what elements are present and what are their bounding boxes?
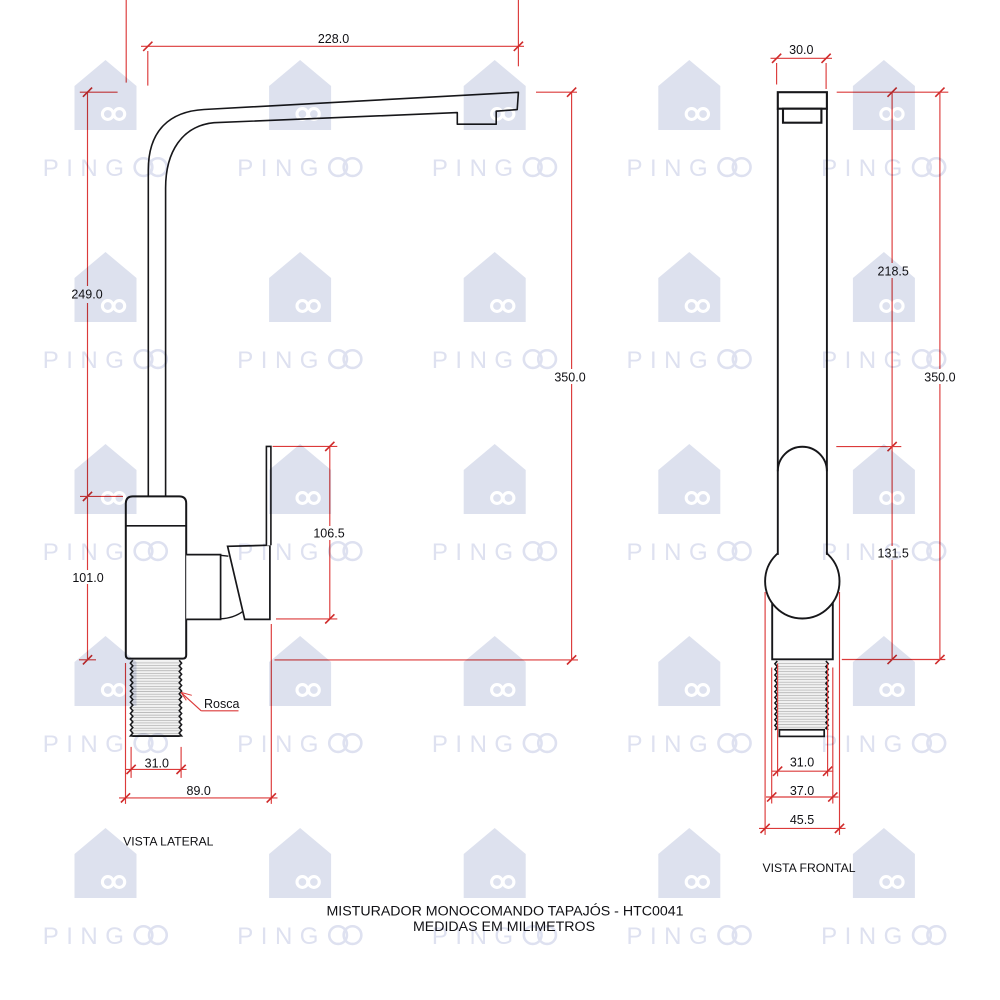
svg-text:350.0: 350.0: [924, 371, 955, 385]
svg-text:PING: PING: [627, 347, 716, 374]
svg-text:31.0: 31.0: [790, 756, 814, 770]
svg-text:350.0: 350.0: [554, 371, 585, 385]
svg-text:MISTURADOR MONOCOMANDO TAPAJÓS: MISTURADOR MONOCOMANDO TAPAJÓS - HTC0041: [326, 903, 683, 920]
svg-text:PING: PING: [432, 539, 521, 566]
svg-text:218.5: 218.5: [878, 265, 909, 279]
svg-text:45.5: 45.5: [790, 813, 814, 827]
svg-text:VISTA FRONTAL: VISTA FRONTAL: [763, 861, 856, 875]
svg-text:MEDIDAS EM MILIMETROS: MEDIDAS EM MILIMETROS: [413, 919, 595, 935]
svg-text:PING: PING: [821, 155, 910, 182]
svg-text:PING: PING: [432, 347, 521, 374]
svg-text:PING: PING: [432, 731, 521, 758]
svg-text:PING: PING: [237, 347, 326, 374]
svg-text:PING: PING: [43, 731, 132, 758]
svg-text:89.0: 89.0: [187, 784, 211, 798]
svg-text:228.0: 228.0: [318, 32, 349, 46]
svg-text:VISTA LATERAL: VISTA LATERAL: [123, 835, 214, 849]
svg-text:37.0: 37.0: [790, 784, 814, 798]
svg-text:PING: PING: [237, 155, 326, 182]
svg-text:PING: PING: [627, 155, 716, 182]
svg-text:PING: PING: [237, 923, 326, 950]
svg-text:PING: PING: [237, 731, 326, 758]
svg-text:30.0: 30.0: [789, 43, 813, 57]
svg-text:101.0: 101.0: [72, 571, 103, 585]
svg-text:PING: PING: [43, 347, 132, 374]
svg-text:PING: PING: [627, 539, 716, 566]
svg-text:PING: PING: [237, 539, 326, 566]
svg-text:PING: PING: [821, 923, 910, 950]
svg-text:PING: PING: [627, 923, 716, 950]
svg-text:PING: PING: [821, 347, 910, 374]
svg-text:31.0: 31.0: [145, 757, 169, 771]
svg-text:131.5: 131.5: [878, 547, 909, 561]
svg-text:PING: PING: [43, 155, 132, 182]
svg-text:PING: PING: [43, 923, 132, 950]
svg-text:PING: PING: [432, 155, 521, 182]
svg-text:106.5: 106.5: [313, 527, 344, 541]
svg-text:PING: PING: [43, 539, 132, 566]
svg-text:PING: PING: [627, 731, 716, 758]
svg-text:PING: PING: [821, 731, 910, 758]
svg-text:Rosca: Rosca: [204, 697, 239, 711]
svg-text:249.0: 249.0: [71, 288, 102, 302]
